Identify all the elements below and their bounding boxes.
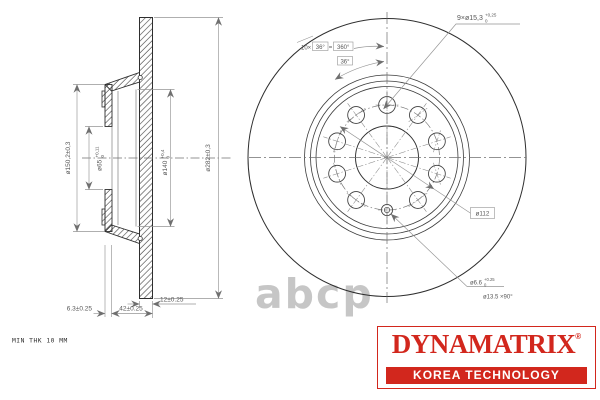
relief-notch-top <box>138 75 142 79</box>
center-line <box>323 158 387 179</box>
spacing-arc <box>354 46 384 48</box>
center-line <box>348 158 387 212</box>
product-drawing-canvas: abcp <box>0 0 600 400</box>
dim-pin-hole-upper-tolerance: +0.25 <box>484 277 495 282</box>
flange-upper-section <box>105 85 112 127</box>
section-view: ø282±0,3 ø150,2±0,3 ø65 +0,11 0 ø140 +0,… <box>12 18 233 345</box>
dim-inner-lower-tolerance: 0 <box>166 156 171 159</box>
dim-bore-base: ø65 <box>97 159 104 171</box>
center-line <box>387 158 451 179</box>
logo-wordmark: DYNAMATRIX® <box>378 327 595 360</box>
dim-bore-lower-tolerance: 0 <box>100 155 105 158</box>
dim-inner-diameter-label: ø140 +0,4 0 <box>160 149 171 175</box>
registered-trademark-icon: ® <box>575 332 581 341</box>
logo-tagline-banner: KOREA TECHNOLOGY <box>386 367 587 384</box>
center-line <box>323 137 387 158</box>
dynamatrix-logo: DYNAMATRIX® KOREA TECHNOLOGY <box>377 326 596 389</box>
dim-outer-diameter-label: ø282±0,3 <box>205 144 212 172</box>
dim-bolt-holes-upper-tolerance: +0,25 <box>485 13 497 18</box>
front-view: 9×ø15,3 +0,25 0 10× 36° = 360° 36° ø112 … <box>248 12 527 303</box>
pilot-step-upper <box>102 91 105 107</box>
dim-flange-diameter-label: ø150,2±0,3 <box>65 141 72 174</box>
center-line <box>387 158 426 212</box>
leader-line <box>434 189 471 214</box>
hole-spacing-angle: 36° <box>316 45 326 51</box>
hole-count-prefix: 10× <box>301 46 312 52</box>
dim-bore-upper-tolerance: +0,11 <box>95 146 100 158</box>
min-thickness-note: MIN THK 10 MM <box>12 338 68 345</box>
bolt-hole-leader <box>384 24 521 109</box>
dim-pin-hole-label: ø6.6 <box>470 281 483 287</box>
dim-bolt-circle-label: ø112 <box>476 211 490 218</box>
dim-bore-diameter-label: ø65 +0,11 0 <box>95 146 106 171</box>
total-angle: 360° <box>337 45 350 51</box>
pin-hole-leader <box>391 214 467 287</box>
front-annotations <box>297 24 520 287</box>
dim-countersink-label: ø13.5 ×90° <box>483 295 513 301</box>
relief-notch-bottom <box>138 236 142 240</box>
single-angle-label: 36° <box>340 59 350 65</box>
dim-overall-height-label: 42±0.25 <box>119 306 143 313</box>
dim-inner-base: ø140 <box>162 160 169 175</box>
dim-bolt-holes-lower-tolerance: 0 <box>485 19 488 24</box>
pilot-step-lower <box>102 209 105 225</box>
brand-name: DYNAMATRIX <box>392 329 576 359</box>
equals-sign: = <box>329 45 333 51</box>
dim-inner-upper-tolerance: +0,4 <box>160 149 165 158</box>
dim-flange-thickness-label: 6.3±0.25 <box>67 306 93 313</box>
dim-band-thickness-label: 12±0.25 <box>160 297 184 304</box>
abcp-watermark: abcp <box>255 270 374 318</box>
flange-lower-section <box>105 190 112 232</box>
center-line <box>387 137 451 158</box>
dim-bolt-holes-label: 9×ø15,3 <box>457 15 483 22</box>
